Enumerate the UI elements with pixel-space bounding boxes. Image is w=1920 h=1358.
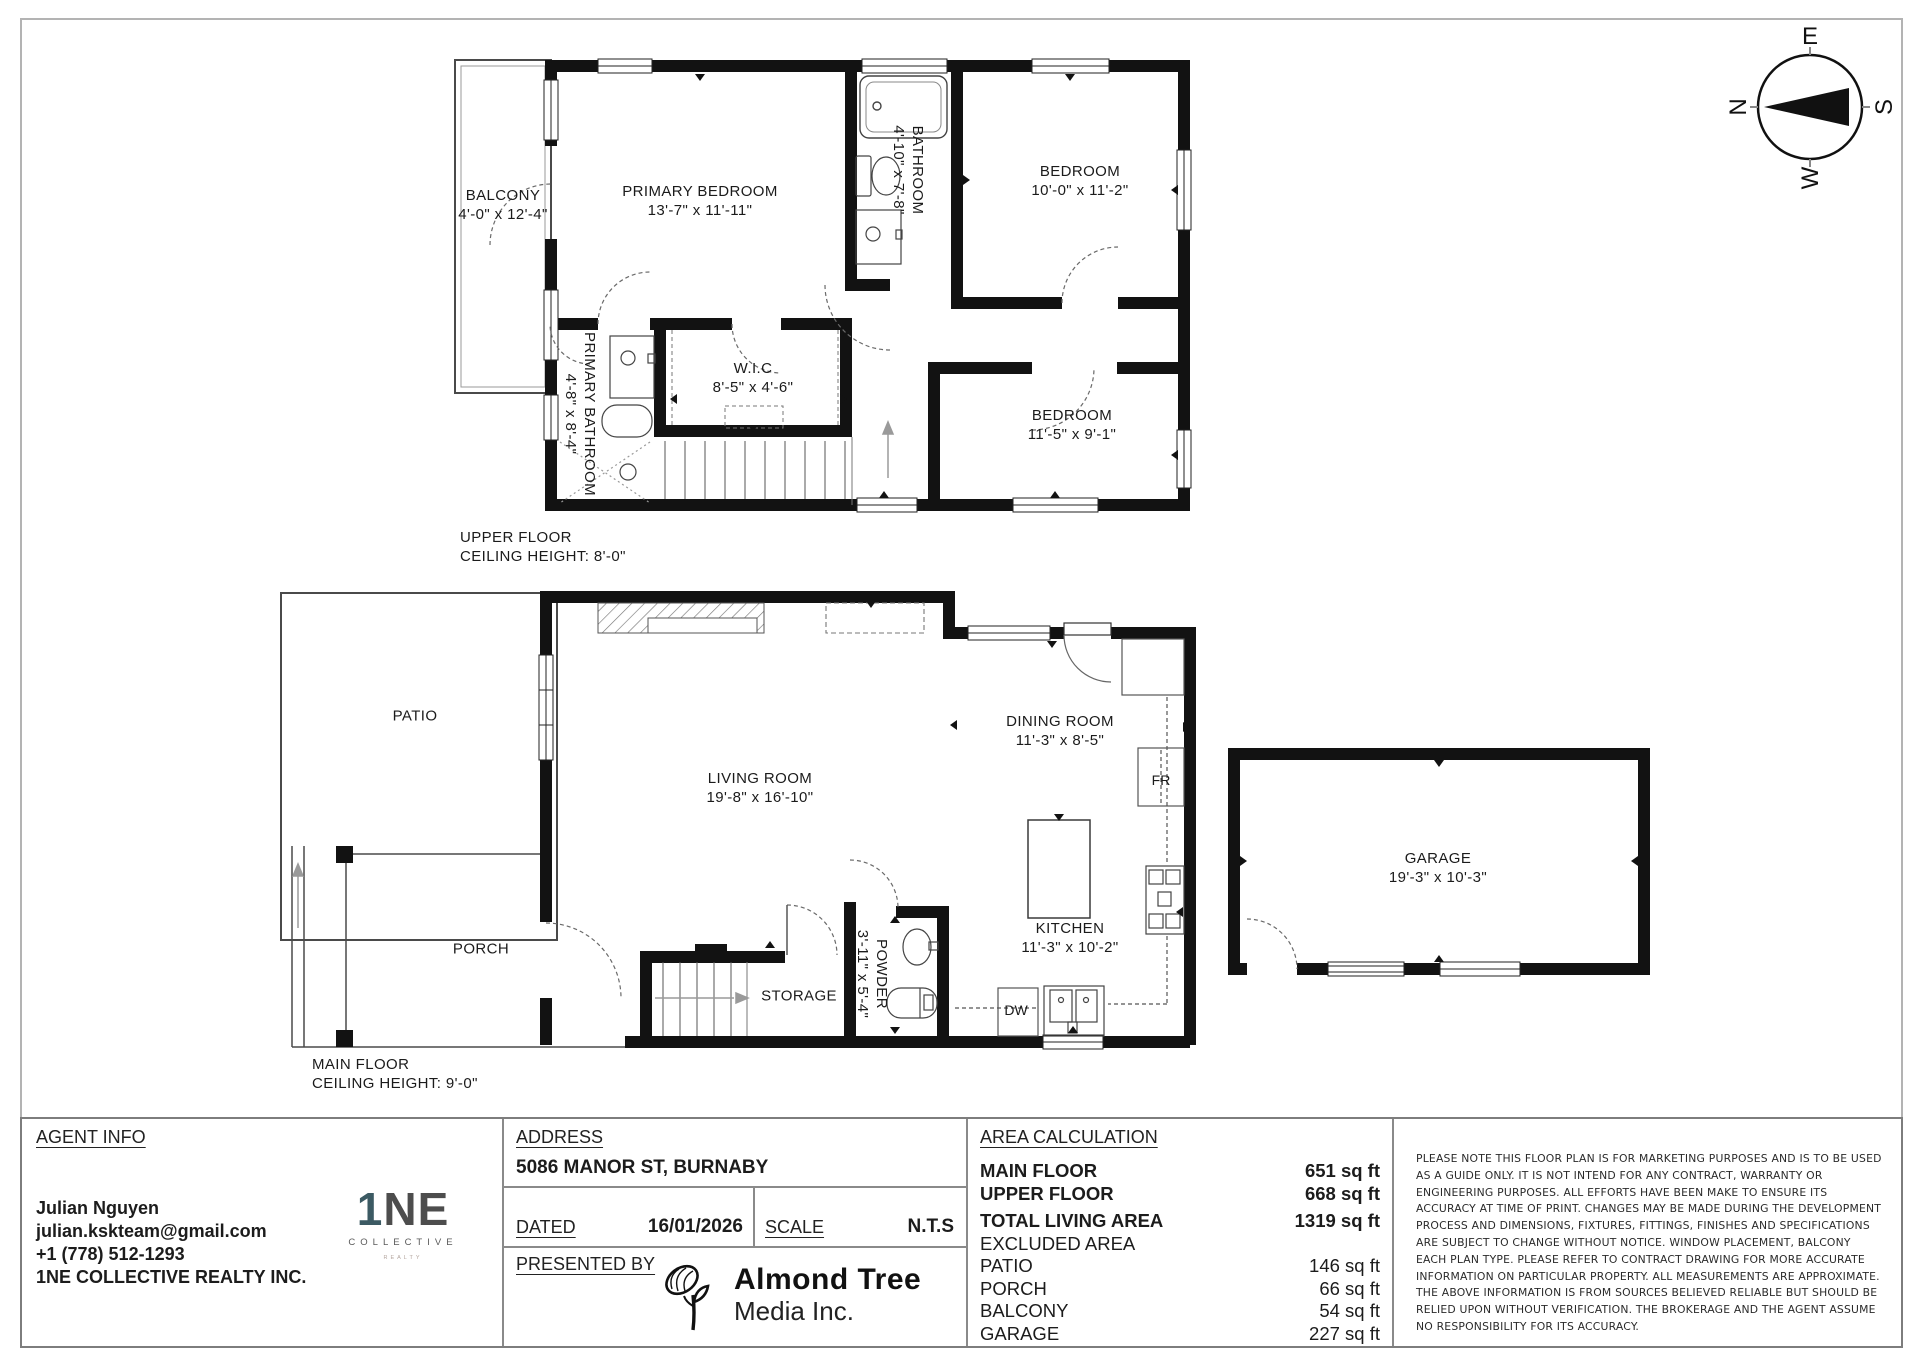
scale-cell: SCALE N.T.S: [755, 1188, 966, 1246]
area-row: BALCONY54 sq ft: [966, 1300, 1392, 1323]
presented-by-cell: PRESENTED BY Almond Tree Media Inc.: [502, 1248, 966, 1346]
garage-door: [1328, 962, 1404, 976]
room-label-kitchen: KITCHEN 11'-3" x 10'-2": [1021, 919, 1118, 957]
area-row: GARAGE227 sq ft: [966, 1323, 1392, 1346]
logo-collective: COLLECTIVE: [344, 1237, 462, 1248]
area-row: PORCH66 sq ft: [966, 1278, 1392, 1301]
agent-phone: +1 (778) 512-1293: [36, 1243, 306, 1266]
room-label-bedroom1: BEDROOM 10'-0" x 11'-2": [1031, 162, 1128, 200]
logo-1: 1: [357, 1183, 384, 1235]
room-label-living-room: LIVING ROOM 19'-8" x 16'-10": [707, 769, 814, 807]
main-stairs: [663, 962, 747, 1036]
compass-n: N: [1725, 98, 1752, 115]
area-row: MAIN FLOOR651 sq ft: [966, 1160, 1392, 1183]
scale-label: SCALE: [765, 1217, 824, 1238]
dated-label: DATED: [516, 1217, 576, 1238]
area-calculation: AREA CALCULATION MAIN FLOOR651 sq ft UPP…: [966, 1119, 1392, 1345]
area-row: TOTAL LIVING AREA1319 sq ft: [966, 1210, 1392, 1233]
logo-realty: REALTY: [344, 1255, 462, 1261]
room-label-garage: GARAGE 19'-3" x 10'-3": [1389, 849, 1487, 887]
room-label-dining-room: DINING ROOM 11'-3" x 8'-5": [1006, 712, 1114, 750]
area-heading: AREA CALCULATION: [980, 1127, 1392, 1148]
room-label-powder: POWDER 3'-11" x 5'-4": [853, 930, 891, 1018]
agent-name: Julian Nguyen: [36, 1197, 306, 1220]
room-label-bedroom2: BEDROOM 11'-5" x 9'-1": [1028, 406, 1116, 444]
main-stair-arrow: [655, 993, 748, 1003]
room-label-primary-bedroom: PRIMARY BEDROOM 13'-7" x 11'-11": [622, 182, 777, 220]
address-heading: ADDRESS: [516, 1127, 952, 1148]
address-value: 5086 MANOR ST, BURNABY: [516, 1157, 952, 1179]
address-cell: ADDRESS 5086 MANOR ST, BURNABY: [502, 1119, 966, 1188]
upper-stair-arrow: [883, 422, 893, 478]
patio-arrow: [293, 864, 303, 928]
porch-post: [336, 1030, 353, 1047]
compass-rose: E N S W: [1725, 23, 1898, 189]
dated-scale-row: DATED 16/01/2026 SCALE N.T.S: [502, 1188, 966, 1248]
upper-floor-caption: UPPER FLOOR CEILING HEIGHT: 8'-0": [460, 528, 626, 566]
dated-cell: DATED 16/01/2026: [502, 1188, 755, 1246]
media-logo: Almond Tree Media Inc.: [662, 1258, 921, 1332]
area-row: UPPER FLOOR668 sq ft: [966, 1183, 1392, 1206]
disclaimer-text: PLEASE NOTE THIS FLOOR PLAN IS FOR MARKE…: [1392, 1119, 1901, 1336]
stove: [1146, 866, 1184, 934]
almond-sprout-icon: [662, 1258, 724, 1332]
north-arrow: [1764, 88, 1849, 126]
footer-bar: AGENT INFO Julian Nguyen julian.kskteam@…: [20, 1117, 1903, 1348]
media-company-suffix: Media Inc.: [734, 1296, 921, 1326]
agent-brokerage: 1NE COLLECTIVE REALTY INC.: [36, 1266, 306, 1289]
logo-ne: NE: [383, 1183, 449, 1235]
dishwasher-label: DW: [1004, 1002, 1028, 1018]
room-label-storage: STORAGE: [761, 987, 837, 1006]
scale-value: N.T.S: [908, 1216, 954, 1238]
kitchen-island: [1028, 820, 1090, 918]
compass-w: W: [1797, 166, 1824, 189]
agent-info-block: Julian Nguyen julian.kskteam@gmail.com +…: [36, 1197, 306, 1289]
dimension-markers: [670, 74, 1638, 1034]
area-row: PATIO146 sq ft: [966, 1255, 1392, 1278]
agent-email: julian.kskteam@gmail.com: [36, 1220, 306, 1243]
porch-post: [336, 846, 353, 863]
room-label-wic: W.I.C 8'-5" x 4'-6": [713, 359, 794, 397]
room-label-porch: PORCH: [453, 940, 509, 959]
media-company-name: Almond Tree: [734, 1264, 921, 1296]
fridge-label: FR: [1152, 772, 1171, 788]
dashed-closet: [826, 603, 924, 633]
entry-door: [1064, 623, 1111, 682]
vanity-sink: [856, 210, 902, 264]
main-floor-plan: [281, 591, 1190, 1049]
patio-outline: [281, 593, 557, 940]
brokerage-logo: 1NE COLLECTIVE REALTY: [344, 1185, 462, 1261]
room-label-bathroom: BATHROOM 4'-10" x 7'-8": [889, 125, 927, 215]
dated-value: 16/01/2026: [648, 1216, 743, 1238]
garage-window: [1440, 962, 1520, 976]
upper-stairs: [665, 437, 852, 505]
main-floor-caption: MAIN FLOOR CEILING HEIGHT: 9'-0": [312, 1055, 478, 1093]
room-label-balcony: BALCONY 4'-0" x 12'-4": [458, 186, 548, 224]
area-row: EXCLUDED AREA: [966, 1233, 1392, 1256]
powder-fixtures: [887, 929, 938, 1018]
compass-s: S: [1871, 99, 1898, 115]
agent-info-heading: AGENT INFO: [36, 1127, 146, 1148]
compass-e: E: [1802, 23, 1818, 50]
room-label-primary-bathroom: PRIMARY BATHROOM 4'-8" x 8'-4": [561, 332, 599, 496]
room-label-patio: PATIO: [393, 707, 438, 726]
kitchen-counters: [955, 639, 1184, 1036]
